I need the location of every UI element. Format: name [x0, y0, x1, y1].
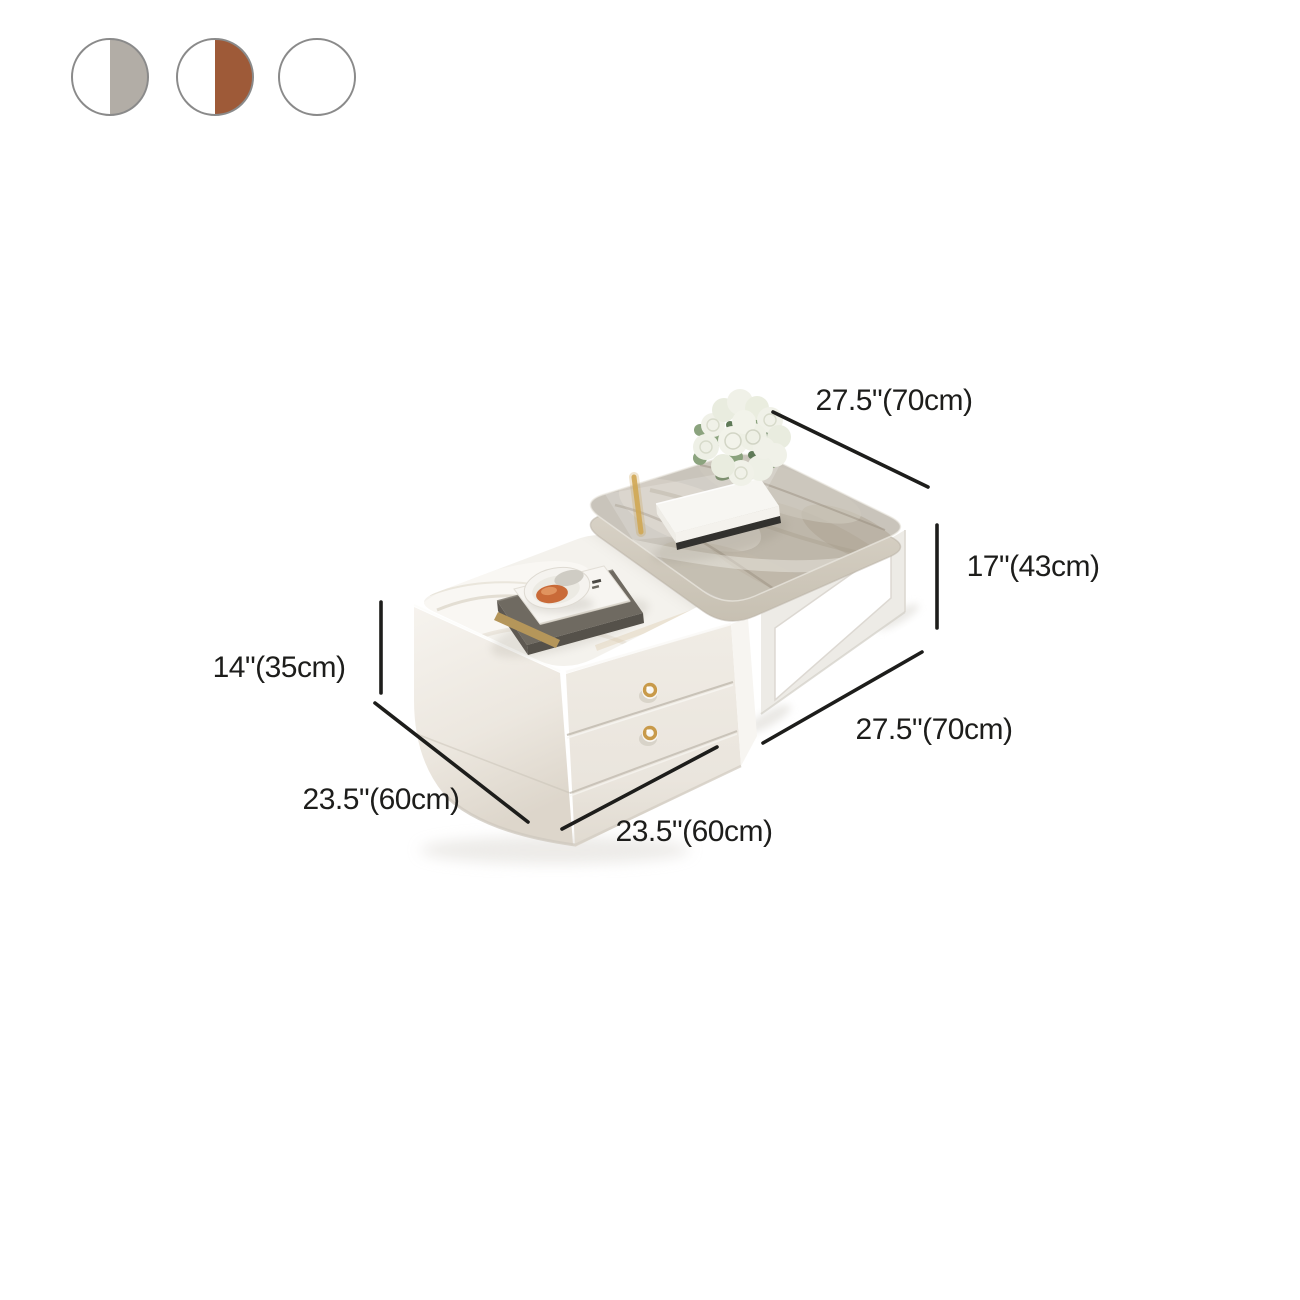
dim-label-small-table-height: 14"(35cm) — [213, 651, 346, 685]
product-illustration — [0, 0, 1300, 1300]
dim-label-large-table-depth: 27.5"(70cm) — [856, 713, 1013, 747]
gold-reflection — [634, 477, 641, 532]
dim-label-small-table-width: 23.5"(60cm) — [616, 815, 773, 849]
dim-label-small-table-depth: 23.5"(60cm) — [303, 783, 460, 817]
dim-label-large-table-width: 27.5"(70cm) — [816, 384, 973, 418]
product-dimension-image: 27.5"(70cm) 17"(43cm) 27.5"(70cm) 14"(35… — [0, 0, 1300, 1300]
dim-label-large-table-height: 17"(43cm) — [967, 550, 1100, 584]
